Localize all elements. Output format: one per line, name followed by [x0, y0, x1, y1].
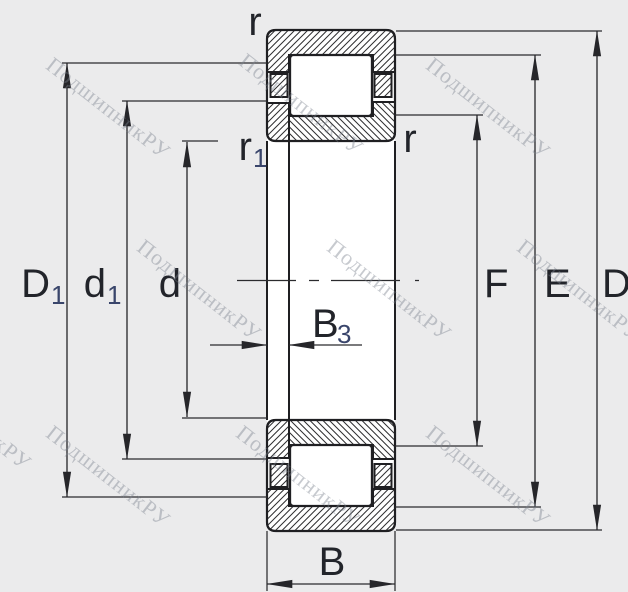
- bearing-cross-section-drawing: r r r 1 D 1 d 1 d B 3 F E D B: [0, 0, 628, 592]
- bearing-section-top: [267, 30, 395, 141]
- roller-top: [290, 55, 372, 116]
- cage-top-left: [271, 74, 288, 97]
- roller-bottom: [290, 445, 372, 506]
- label-d1-main: d: [84, 262, 106, 306]
- cage-top-right: [375, 74, 392, 97]
- bearing-diagram-canvas: r r r 1 D 1 d 1 d B 3 F E D B ПодшипникР…: [0, 0, 628, 592]
- cage-bottom-left: [271, 464, 288, 487]
- label-D1-main: D: [21, 262, 50, 306]
- loose-rib-bottom: [267, 420, 289, 458]
- label-D1-sub: 1: [51, 280, 65, 310]
- bearing-section-bottom: [267, 420, 395, 531]
- cage-bottom-right: [375, 464, 392, 487]
- label-d: d: [159, 262, 181, 306]
- label-B3-main: B: [312, 302, 339, 346]
- label-F: F: [484, 262, 508, 306]
- label-r1-main: r: [239, 125, 252, 169]
- label-B3-sub: 3: [337, 319, 351, 349]
- loose-rib-top: [267, 103, 289, 141]
- label-d1-sub: 1: [107, 280, 121, 310]
- label-r-right: r: [403, 117, 416, 161]
- label-r1-sub: 1: [253, 143, 267, 173]
- label-D: D: [602, 262, 628, 306]
- label-r-top: r: [248, 0, 261, 44]
- label-B: B: [319, 540, 346, 584]
- label-E: E: [544, 262, 571, 306]
